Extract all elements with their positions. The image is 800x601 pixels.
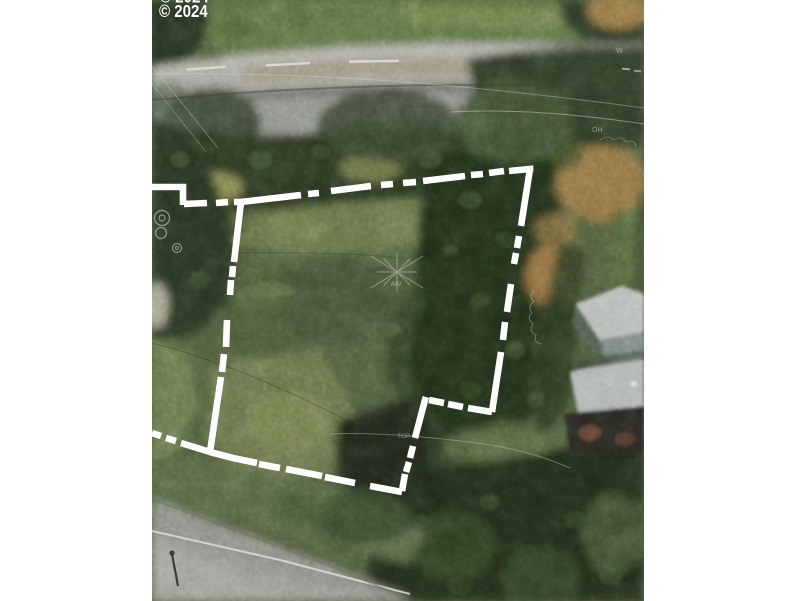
- svg-text:OH: OH: [592, 127, 603, 134]
- svg-text:W: W: [616, 48, 623, 55]
- svg-text:© 2024: © 2024: [159, 2, 208, 21]
- svg-text:AW: AW: [391, 281, 402, 288]
- svg-text:TOP: TOP: [397, 433, 410, 440]
